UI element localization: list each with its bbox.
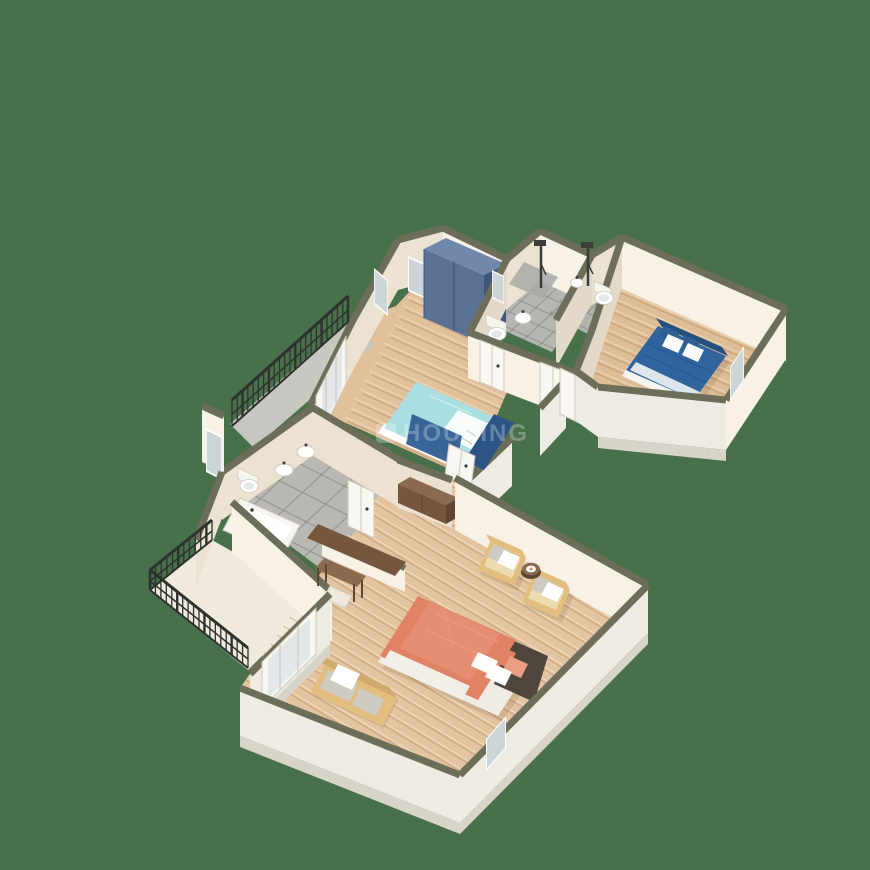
round-side-table bbox=[521, 563, 541, 579]
wall-bedroom2-front bbox=[598, 387, 726, 461]
watermark-text: HOUSING bbox=[403, 420, 529, 447]
watermark-logo-icon bbox=[376, 423, 396, 443]
floor-plan-3d-render: HOUSING bbox=[0, 0, 870, 870]
window-bath1 bbox=[492, 270, 504, 304]
